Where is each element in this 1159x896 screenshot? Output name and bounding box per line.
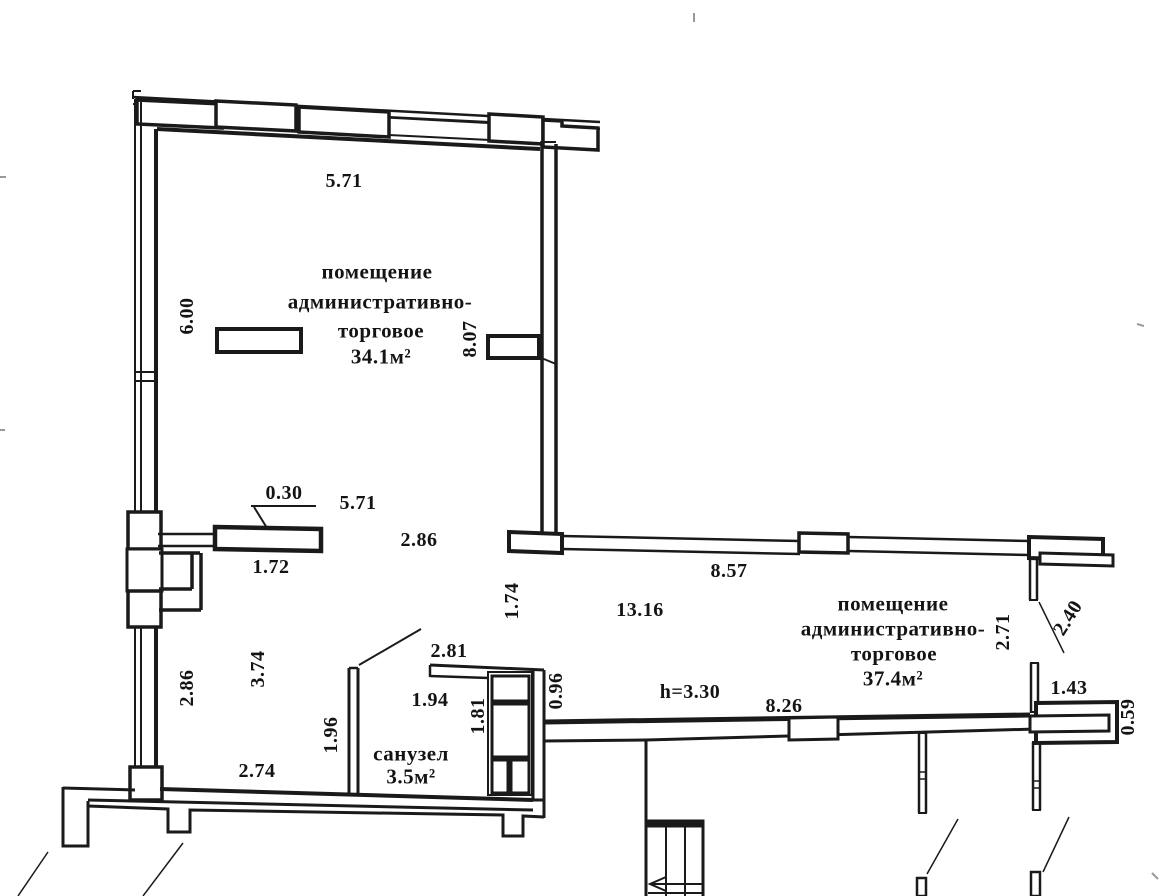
radiator	[217, 329, 556, 364]
floor-plan-drawing	[0, 0, 1159, 896]
leader-lines-bottom-right	[917, 817, 1069, 896]
partition-stub	[158, 506, 321, 551]
partition-2-40	[1029, 560, 1064, 653]
bottom-wall-left	[18, 741, 545, 896]
partition-below-wall	[918, 733, 927, 813]
staircase	[646, 740, 704, 896]
bathroom	[349, 629, 544, 800]
top-room-right-wall	[542, 141, 556, 532]
bottom-wall-right	[543, 715, 1036, 742]
left-wall	[127, 99, 162, 800]
top-wall	[133, 91, 600, 150]
wall-niche-steps	[159, 553, 201, 610]
middle-wall	[509, 532, 1113, 566]
exit-vestibule	[1030, 702, 1117, 743]
floor-plan-page: 5.716.008.07помещениеадминистративно-тор…	[0, 0, 1159, 896]
